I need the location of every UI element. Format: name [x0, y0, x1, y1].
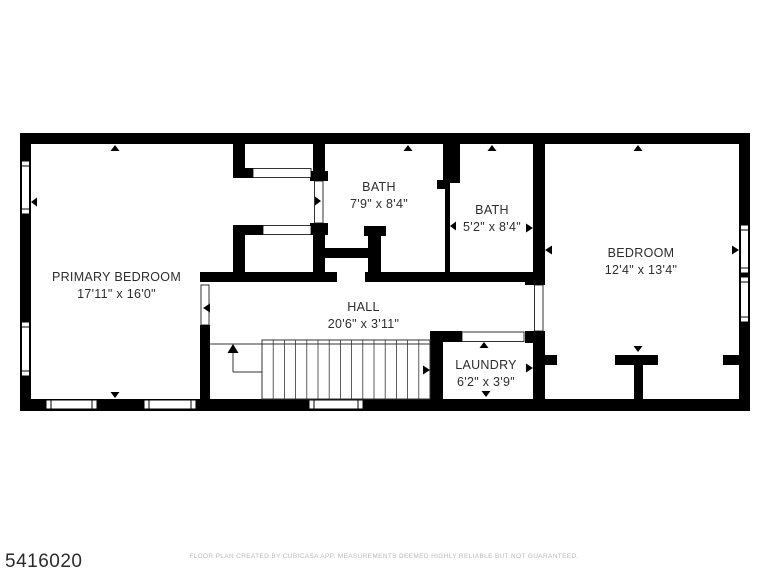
wall-segment: [443, 144, 460, 183]
room-label-bath-2: BATH 5'2" x 8'4": [463, 202, 521, 236]
dim-arrow-down: [111, 392, 120, 398]
wall-segment: [323, 248, 368, 258]
window: [46, 400, 97, 409]
dim-arrow-right: [526, 364, 533, 373]
window: [309, 400, 363, 409]
room-dims: 20'6" x 3'11": [328, 316, 400, 333]
wall-segment: [543, 355, 557, 365]
wall-segment: [20, 133, 750, 144]
dim-arrow-left: [545, 246, 552, 255]
room-label-laundry: LAUNDRY 6'2" x 3'9": [455, 357, 517, 391]
wall-segment: [634, 363, 643, 399]
room-name: BATH: [463, 202, 521, 219]
dim-arrow-left: [450, 222, 456, 231]
wall-segment: [233, 231, 245, 273]
room-label-primary-bedroom: PRIMARY BEDROOM 17'11" x 16'0": [52, 269, 181, 303]
room-name: LAUNDRY: [455, 357, 517, 374]
dim-arrow-right: [732, 246, 739, 255]
wall-segment: [533, 343, 545, 399]
wall-segment: [310, 223, 328, 235]
closet-opening: [253, 169, 311, 178]
window: [144, 400, 196, 409]
stairs-outline: [262, 340, 430, 399]
wall-segment: [533, 133, 545, 273]
room-name: PRIMARY BEDROOM: [52, 269, 181, 286]
wall-segment: [430, 332, 443, 399]
wall-segment: [233, 168, 253, 178]
room-name: BEDROOM: [605, 245, 677, 262]
dim-arrow-up: [488, 145, 497, 151]
window: [22, 322, 30, 376]
window: [741, 225, 749, 273]
room-dims: 12'4" x 13'4": [605, 262, 677, 279]
floor-plan-page: PRIMARY BEDROOM 17'11" x 16'0" BATH 7'9"…: [0, 0, 768, 576]
dim-arrow-right: [526, 224, 533, 233]
wall-segment: [310, 171, 328, 181]
window: [741, 277, 749, 322]
room-dims: 7'9" x 8'4": [350, 196, 408, 213]
window: [22, 161, 30, 214]
wall-segment: [723, 355, 739, 365]
wall-segment: [430, 331, 462, 342]
dim-arrow-right: [423, 366, 430, 375]
disclaimer-text: FLOOR PLAN CREATED BY CUBICASA APP. MEAS…: [0, 553, 768, 560]
wall-segment: [20, 399, 750, 411]
dim-arrow-down: [634, 346, 643, 352]
dim-arrow-up: [404, 145, 413, 151]
room-dims: 17'11" x 16'0": [52, 286, 181, 303]
dim-arrow-up: [480, 342, 489, 348]
room-name: BATH: [350, 179, 408, 196]
room-label-bath-1: BATH 7'9" x 8'4": [350, 179, 408, 213]
stairs-direction-arrow: [228, 344, 263, 372]
wall-segment: [365, 272, 533, 282]
stair-treads: [273, 340, 419, 399]
wall-segment: [200, 325, 210, 399]
dim-arrow-up: [634, 145, 643, 151]
wall-segment: [368, 226, 381, 273]
dim-arrow-left: [31, 198, 37, 207]
stairs: [210, 340, 430, 399]
room-name: HALL: [328, 299, 400, 316]
stairs-arrow-head: [228, 344, 239, 353]
cased-opening: [462, 332, 524, 342]
closet-opening: [263, 226, 311, 235]
door-opening: [535, 285, 544, 331]
room-label-bedroom: BEDROOM 12'4" x 13'4": [605, 245, 677, 279]
wall-segment: [525, 331, 545, 343]
room-dims: 5'2" x 8'4": [463, 219, 521, 236]
room-dims: 6'2" x 3'9": [455, 374, 517, 391]
wall-segment: [233, 144, 245, 170]
wall-segment: [525, 273, 545, 285]
wall-segment: [200, 272, 337, 282]
room-label-hall: HALL 20'6" x 3'11": [328, 299, 400, 333]
wall-segment: [445, 183, 450, 272]
wall-segment: [313, 144, 325, 172]
dim-arrow-up: [111, 145, 120, 151]
dim-arrow-down: [482, 391, 491, 397]
